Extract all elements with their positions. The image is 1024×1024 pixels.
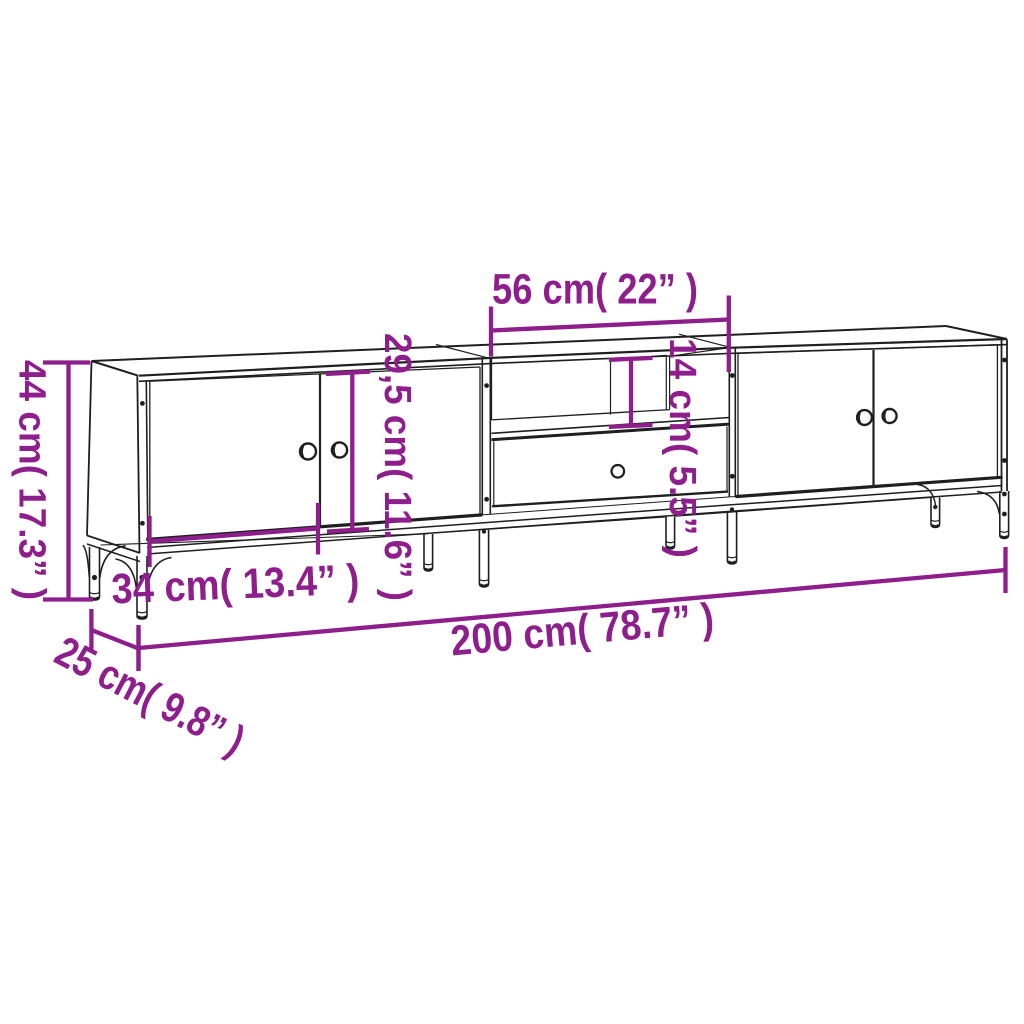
svg-text:56 cm( 22” ): 56 cm( 22” ) xyxy=(492,267,698,314)
svg-text:200 cm( 78.7” ): 200 cm( 78.7” ) xyxy=(449,595,716,665)
svg-text:29,5 cm( 11.6” ): 29,5 cm( 11.6” ) xyxy=(376,333,418,601)
svg-text:14 cm( 5.5” ): 14 cm( 5.5” ) xyxy=(661,338,703,558)
svg-text:44 cm( 17.3” ): 44 cm( 17.3” ) xyxy=(11,360,53,600)
svg-text:34 cm( 13.4” ): 34 cm( 13.4” ) xyxy=(111,557,361,614)
